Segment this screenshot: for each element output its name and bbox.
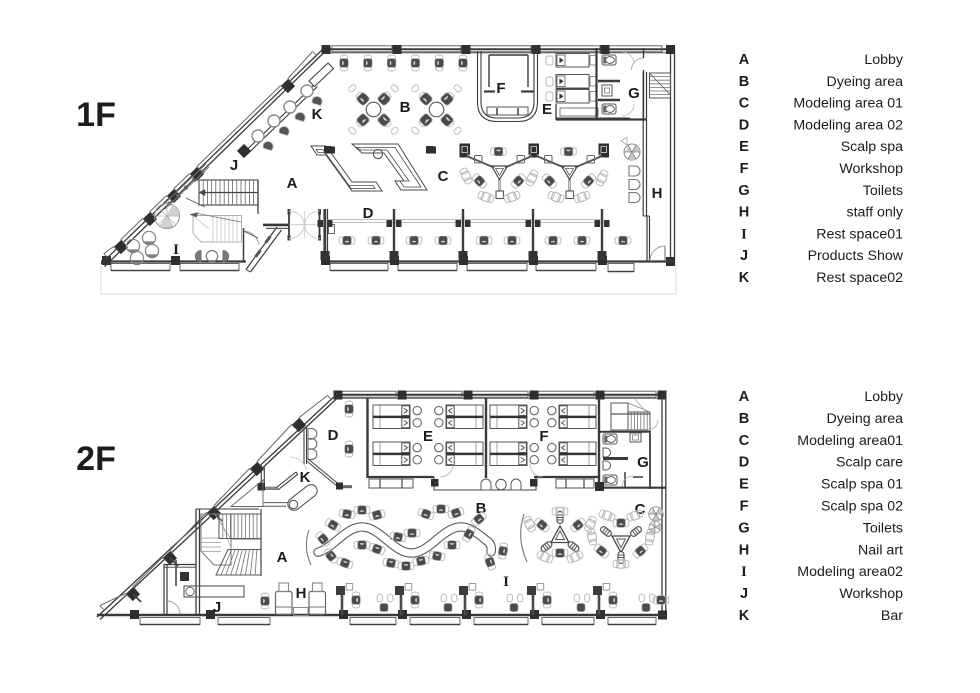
svg-text:Nail art: Nail art: [858, 542, 903, 558]
svg-text:I: I: [741, 564, 747, 580]
svg-text:F: F: [496, 80, 505, 97]
svg-text:Scalp spa 02: Scalp spa 02: [821, 499, 903, 515]
svg-text:Dyeing area: Dyeing area: [826, 74, 903, 90]
svg-text:C: C: [739, 433, 750, 449]
svg-text:E: E: [739, 139, 749, 155]
svg-text:F: F: [740, 161, 749, 177]
svg-text:staff only: staff only: [846, 205, 903, 221]
svg-text:B: B: [400, 99, 411, 116]
svg-text:Scalp care: Scalp care: [836, 455, 903, 471]
svg-text:Workshop: Workshop: [839, 586, 903, 602]
svg-text:K: K: [739, 608, 750, 624]
svg-text:Toilets: Toilets: [863, 183, 903, 199]
svg-text:I: I: [173, 242, 179, 258]
svg-text:C: C: [438, 168, 449, 185]
svg-text:J: J: [230, 157, 238, 174]
svg-text:G: G: [738, 183, 749, 199]
svg-text:K: K: [312, 106, 323, 123]
svg-text:B: B: [739, 74, 749, 90]
svg-text:F: F: [740, 499, 749, 515]
svg-text:B: B: [739, 411, 749, 427]
svg-text:A: A: [739, 52, 750, 68]
svg-text:Modeling area01: Modeling area01: [797, 433, 903, 449]
svg-text:D: D: [739, 117, 749, 133]
svg-text:I: I: [741, 226, 747, 242]
svg-text:D: D: [328, 427, 339, 444]
svg-text:1F: 1F: [76, 96, 116, 134]
svg-text:E: E: [542, 101, 552, 118]
svg-text:Modeling area 02: Modeling area 02: [793, 117, 903, 133]
svg-text:G: G: [628, 85, 640, 102]
svg-text:Rest space02: Rest space02: [816, 270, 903, 286]
svg-text:J: J: [740, 248, 748, 264]
svg-text:Toilets: Toilets: [863, 520, 903, 536]
svg-text:K: K: [739, 270, 750, 286]
svg-text:G: G: [738, 520, 749, 536]
svg-text:Scalp spa 01: Scalp spa 01: [821, 477, 903, 493]
svg-text:A: A: [739, 389, 750, 405]
svg-text:C: C: [739, 96, 750, 112]
svg-text:A: A: [287, 175, 298, 192]
svg-text:D: D: [739, 455, 749, 471]
svg-text:F: F: [539, 428, 548, 445]
svg-text:A: A: [277, 549, 288, 566]
svg-text:Products Show: Products Show: [808, 248, 904, 264]
svg-text:H: H: [739, 205, 749, 221]
svg-text:I: I: [503, 574, 509, 590]
svg-text:Rest space01: Rest space01: [816, 226, 903, 242]
svg-text:H: H: [652, 185, 663, 202]
svg-text:H: H: [296, 585, 307, 602]
svg-text:2F: 2F: [76, 440, 116, 478]
svg-text:Lobby: Lobby: [864, 52, 904, 68]
svg-text:Bar: Bar: [881, 608, 903, 624]
svg-text:Scalp spa: Scalp spa: [841, 139, 903, 155]
svg-text:Modeling area 01: Modeling area 01: [793, 96, 903, 112]
svg-text:Modeling area02: Modeling area02: [797, 564, 903, 580]
svg-text:J: J: [740, 586, 748, 602]
svg-text:E: E: [739, 477, 749, 493]
svg-text:E: E: [423, 428, 433, 445]
svg-text:Dyeing area: Dyeing area: [826, 411, 903, 427]
svg-text:Workshop: Workshop: [839, 161, 903, 177]
svg-text:K: K: [300, 469, 311, 486]
svg-text:H: H: [739, 542, 749, 558]
svg-text:G: G: [637, 454, 649, 471]
svg-text:J: J: [213, 599, 221, 616]
svg-text:Lobby: Lobby: [864, 389, 904, 405]
